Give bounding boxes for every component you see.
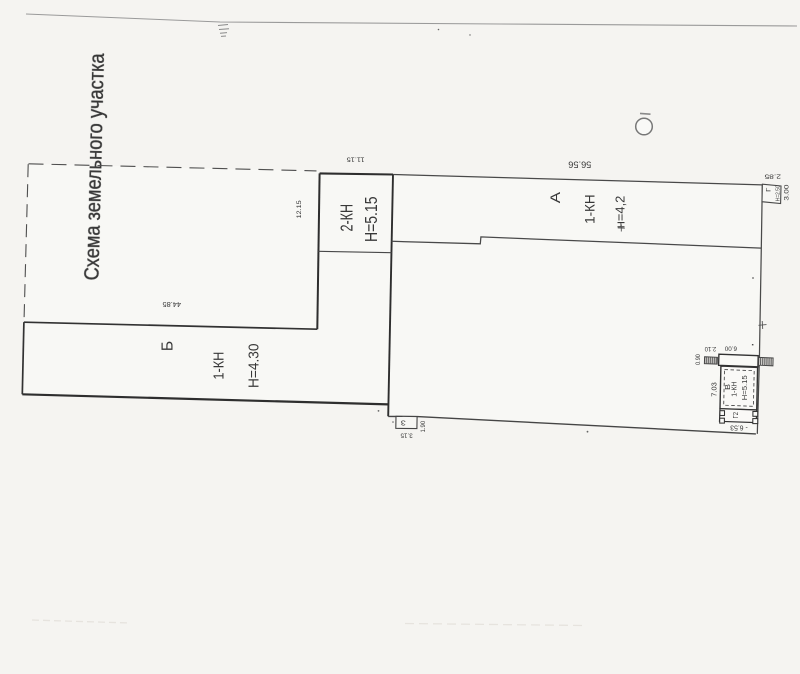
- svg-text:3.00: 3.00: [783, 184, 790, 200]
- svg-text:- 6.53: - 6.53: [730, 423, 748, 430]
- svg-text:А: А: [548, 192, 563, 203]
- svg-text:11.15: 11.15: [346, 156, 365, 162]
- svg-text:6.00: 6.00: [725, 345, 737, 352]
- svg-text:56.56: 56.56: [568, 159, 591, 169]
- svg-text:1-КН: 1-КН: [730, 382, 739, 397]
- svg-text:Г2: Г2: [733, 412, 740, 419]
- svg-text:2.10: 2.10: [704, 345, 716, 352]
- svg-text:Н=2.50: Н=2.50: [776, 185, 782, 201]
- svg-text:44.85: 44.85: [162, 300, 181, 307]
- svg-text:2.85: 2.85: [764, 172, 781, 179]
- svg-text:1-КН: 1-КН: [582, 194, 597, 224]
- svg-text:Б: Б: [160, 341, 177, 352]
- svg-text:2-КН: 2-КН: [337, 204, 357, 232]
- svg-text:7.03: 7.03: [712, 382, 719, 397]
- svg-text:Н=4.30: Н=4.30: [246, 344, 263, 389]
- svg-text:1.90: 1.90: [420, 420, 427, 432]
- svg-text:Г: Г: [765, 187, 772, 192]
- svg-text:н=4,2: н=4,2: [613, 196, 628, 229]
- svg-text:1-КН: 1-КН: [211, 352, 227, 380]
- svg-text:Н=5.15: Н=5.15: [361, 197, 381, 243]
- svg-text:Н=5.15: Н=5.15: [740, 375, 749, 400]
- svg-text:З: З: [401, 418, 406, 425]
- svg-text:3.15: 3.15: [400, 432, 413, 439]
- svg-text:0.90: 0.90: [695, 354, 702, 365]
- svg-text:12.15: 12.15: [296, 200, 303, 219]
